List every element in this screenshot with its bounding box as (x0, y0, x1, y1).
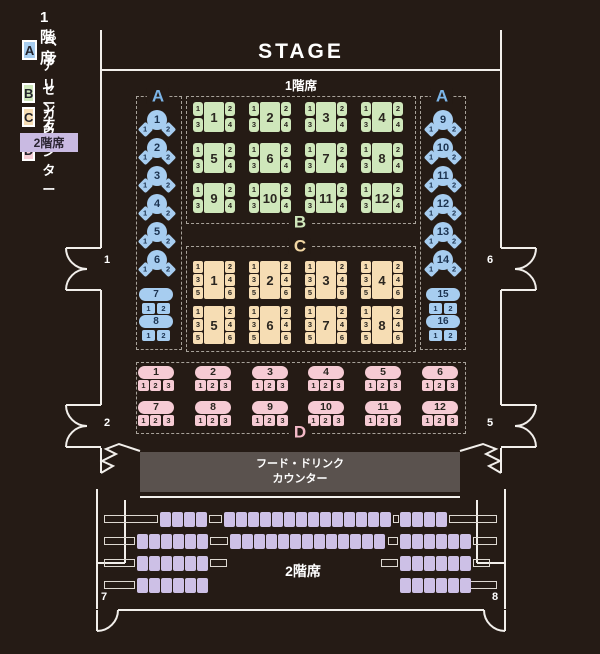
floor2-counter-bar (104, 581, 135, 589)
seat: 4 (281, 319, 291, 331)
legend-floor2-badge: 2階席 (20, 133, 78, 152)
seat: 4 (281, 118, 291, 132)
floor2-seat (272, 512, 283, 527)
table-b-11: 11 (316, 183, 336, 213)
table-b-8: 8 (372, 143, 392, 173)
floor2-seat (173, 534, 184, 549)
table-c-5: 5 (204, 306, 224, 344)
seat: 1 (429, 303, 442, 314)
seat: 1 (429, 330, 442, 341)
floor2-seat (424, 578, 435, 593)
floor2-seat (197, 556, 208, 571)
seat: 5 (305, 287, 315, 299)
floor2-seat (185, 556, 196, 571)
seat: 2 (281, 143, 291, 157)
floor2-seat (308, 512, 319, 527)
floor2-counter-bar (210, 559, 227, 567)
floor2-seat (173, 556, 184, 571)
floor2-seat (344, 512, 355, 527)
table-c-1: 1 (204, 261, 224, 299)
floor2-counter-bar (104, 537, 135, 545)
floor2-seat (338, 534, 349, 549)
seat: 1 (193, 143, 203, 157)
floor2-seat (284, 512, 295, 527)
seat: 2 (207, 415, 218, 426)
seat: 2 (337, 183, 347, 197)
floor2-seat (149, 556, 160, 571)
seat: 2 (393, 306, 403, 318)
seat: 3 (163, 380, 174, 391)
seat: 5 (305, 332, 315, 344)
floor2-seat (424, 534, 435, 549)
seat: 5 (249, 287, 259, 299)
seat: 4 (281, 159, 291, 173)
seat: 3 (305, 319, 315, 331)
floor2-seat (314, 534, 325, 549)
seat: 3 (333, 380, 344, 391)
floor2-seat (436, 512, 447, 527)
floor2-seat (266, 534, 277, 549)
floor2-seat (362, 534, 373, 549)
counter-d-7: 7 (138, 401, 174, 414)
seat: 6 (337, 332, 347, 344)
seat: 1 (305, 102, 315, 116)
seat: 3 (249, 199, 259, 213)
table-b-9: 9 (204, 183, 224, 213)
floor2-seat (460, 534, 471, 549)
floor1-label: 1階席 (251, 75, 351, 94)
door-5-symbol (501, 405, 536, 447)
counter-d-6: 6 (422, 366, 458, 379)
floor2-seat (197, 534, 208, 549)
seat: 2 (225, 306, 235, 318)
section-a-right-label: A (431, 88, 453, 105)
floor2-seat (436, 578, 447, 593)
seat: 4 (225, 199, 235, 213)
seat: 1 (422, 415, 433, 426)
floor2-seat (173, 578, 184, 593)
floor2-counter-bar (104, 559, 135, 567)
floor2-counter-bar (209, 515, 222, 523)
seat: 6 (225, 287, 235, 299)
floor2-seat (448, 534, 459, 549)
door-number-7: 7 (101, 591, 107, 603)
seat: 2 (320, 415, 331, 426)
seat: 2 (337, 306, 347, 318)
counter-d-12: 12 (422, 401, 458, 414)
floor2-seat (368, 512, 379, 527)
floor2-seat (184, 512, 195, 527)
door-number-6: 6 (487, 254, 493, 266)
seat: 3 (361, 274, 371, 286)
floor2-seat (224, 512, 235, 527)
floor2-seat (460, 578, 471, 593)
seat: 1 (249, 183, 259, 197)
seat: 3 (333, 415, 344, 426)
seat: 1 (305, 306, 315, 318)
food-drink-counter-line1: フード・ドリンク (256, 457, 344, 472)
table-b-1: 1 (204, 102, 224, 132)
seat: 4 (393, 274, 403, 286)
seat: 6 (225, 332, 235, 344)
seat: 2 (225, 183, 235, 197)
seat: 1 (365, 415, 376, 426)
seat: 1 (365, 380, 376, 391)
seat: 3 (305, 274, 315, 286)
seat: 4 (393, 118, 403, 132)
floor2-seat (448, 556, 459, 571)
seat: 3 (361, 118, 371, 132)
counter-d-3: 3 (252, 366, 288, 379)
floor2-seat (436, 556, 447, 571)
seat: 3 (361, 199, 371, 213)
seat: 1 (361, 183, 371, 197)
table-b-7: 7 (316, 143, 336, 173)
floor2-seat (320, 512, 331, 527)
seat: 1 (193, 261, 203, 273)
floor2-seat (448, 578, 459, 593)
seat: 3 (447, 380, 458, 391)
table-c-3: 3 (316, 261, 336, 299)
seat: 3 (193, 159, 203, 173)
floor2-seat (137, 534, 148, 549)
seat: 5 (361, 332, 371, 344)
seat: 6 (281, 287, 291, 299)
floor2-seat (172, 512, 183, 527)
floor2-counter-bar (388, 537, 398, 545)
counter-d-1: 1 (138, 366, 174, 379)
floor2-seat (400, 578, 411, 593)
section-c-label: C (289, 238, 311, 255)
seat: 2 (434, 415, 445, 426)
seat: 3 (390, 415, 401, 426)
floor2-seat (161, 556, 172, 571)
seat: 1 (252, 415, 263, 426)
seat: 2 (337, 102, 347, 116)
seat: 6 (393, 332, 403, 344)
table-c-2: 2 (260, 261, 280, 299)
seat: 6 (281, 332, 291, 344)
door-7-symbol (97, 610, 118, 631)
seat: 4 (393, 199, 403, 213)
seat: 2 (444, 330, 457, 341)
floor2-seat (161, 578, 172, 593)
seat: 2 (281, 306, 291, 318)
floor2-counter-bar (104, 515, 158, 523)
seat: 1 (422, 380, 433, 391)
floor2-seat (302, 534, 313, 549)
seat: 3 (193, 274, 203, 286)
seat: 2 (393, 183, 403, 197)
floor2-seat (160, 512, 171, 527)
seat: 2 (281, 261, 291, 273)
floor2-seat (460, 556, 471, 571)
floor2-seat (400, 556, 411, 571)
seat: 2 (157, 303, 170, 314)
seat: 3 (220, 380, 231, 391)
food-drink-counter: フード・ドリンク カウンター (140, 452, 460, 492)
floor2-seat (254, 534, 265, 549)
seat: 3 (305, 199, 315, 213)
seat: 1 (195, 415, 206, 426)
table-a-8: 8 (139, 315, 173, 328)
floor2-counter-bar (470, 581, 497, 589)
seat: 4 (337, 118, 347, 132)
floor2-counter-bar (473, 559, 490, 567)
floor2-counter-bar (381, 559, 398, 567)
seat: 3 (277, 380, 288, 391)
floor2-seat (296, 512, 307, 527)
floor2-seat (197, 578, 208, 593)
seat: 3 (220, 415, 231, 426)
floor2-seat (236, 512, 247, 527)
break-line-right (460, 444, 501, 473)
seat: 3 (361, 159, 371, 173)
break-line-left (101, 444, 140, 473)
floor2-seat (260, 512, 271, 527)
seat: 4 (225, 118, 235, 132)
seat: 1 (361, 261, 371, 273)
table-b-12: 12 (372, 183, 392, 213)
floor2-seat (412, 556, 423, 571)
seat: 3 (305, 159, 315, 173)
seat: 2 (393, 143, 403, 157)
seat: 3 (305, 118, 315, 132)
floor2-seat (400, 534, 411, 549)
seat: 1 (305, 143, 315, 157)
seat: 2 (444, 303, 457, 314)
door-number-8: 8 (492, 591, 498, 603)
door-1-symbol (66, 248, 101, 290)
seat: 4 (337, 319, 347, 331)
seat: 3 (277, 415, 288, 426)
food-drink-counter-line2: カウンター (273, 472, 328, 487)
seat: 1 (305, 183, 315, 197)
table-c-6: 6 (260, 306, 280, 344)
seat: 1 (142, 330, 155, 341)
seat: 4 (337, 159, 347, 173)
seat: 2 (337, 261, 347, 273)
seat: 2 (320, 380, 331, 391)
table-b-6: 6 (260, 143, 280, 173)
floor2-seat (374, 534, 385, 549)
seat: 1 (195, 380, 206, 391)
counter-d-2: 2 (195, 366, 231, 379)
seat: 1 (138, 380, 149, 391)
floor2-seat (356, 512, 367, 527)
seat: 5 (193, 332, 203, 344)
seat: 1 (249, 102, 259, 116)
seat: 4 (225, 319, 235, 331)
seat: 1 (142, 303, 155, 314)
section-a-left-label: A (147, 88, 169, 105)
seat: 2 (157, 330, 170, 341)
seat: 3 (249, 274, 259, 286)
floor2-seat (436, 534, 447, 549)
floor2-seat (412, 534, 423, 549)
seat: 3 (193, 319, 203, 331)
table-a-7: 7 (139, 288, 173, 301)
floor2-seat (424, 556, 435, 571)
door-number-5: 5 (487, 417, 493, 429)
table-b-3: 3 (316, 102, 336, 132)
floor2-counter-bar (473, 537, 497, 545)
floor2-seat (326, 534, 337, 549)
seat: 3 (249, 319, 259, 331)
floor2-seat (149, 534, 160, 549)
floor2-seat (185, 534, 196, 549)
table-b-10: 10 (260, 183, 280, 213)
seat: 3 (361, 319, 371, 331)
seat: 4 (281, 199, 291, 213)
seat: 1 (361, 143, 371, 157)
seat: 3 (249, 159, 259, 173)
section-d-label: D (289, 424, 311, 441)
table-b-5: 5 (204, 143, 224, 173)
seat: 5 (249, 332, 259, 344)
table-c-4: 4 (372, 261, 392, 299)
seat: 2 (207, 380, 218, 391)
seat: 1 (193, 183, 203, 197)
seat: 2 (264, 415, 275, 426)
floor2-seat (290, 534, 301, 549)
floor2-label: 2階席 (250, 561, 356, 581)
counter-d-4: 4 (308, 366, 344, 379)
floor2-seat (230, 534, 241, 549)
floor2-seat (332, 512, 343, 527)
seat: 2 (377, 380, 388, 391)
seat: 4 (393, 319, 403, 331)
seat: 2 (264, 380, 275, 391)
counter-d-8: 8 (195, 401, 231, 414)
floor2-seat (161, 534, 172, 549)
seat: 5 (361, 287, 371, 299)
floor2-seat (137, 578, 148, 593)
floor2-counter-bar (210, 537, 228, 545)
seat: 4 (281, 274, 291, 286)
seat: 2 (225, 143, 235, 157)
counter-d-9: 9 (252, 401, 288, 414)
stage-label: STAGE (201, 40, 401, 64)
floor2-seat (412, 578, 423, 593)
door-8-symbol (484, 610, 505, 631)
seat: 1 (361, 306, 371, 318)
floor2-seat (400, 512, 411, 527)
seat: 2 (225, 102, 235, 116)
venue-seating-chart: 1階席 A ペア B アリーナ C センター D カウンター 2階席 STAGE… (0, 0, 600, 654)
seat: 3 (447, 415, 458, 426)
seat: 4 (225, 274, 235, 286)
seat: 1 (138, 415, 149, 426)
seat: 5 (193, 287, 203, 299)
counter-d-10: 10 (308, 401, 344, 414)
floor2-seat (185, 578, 196, 593)
seat: 1 (249, 261, 259, 273)
seat: 2 (225, 261, 235, 273)
floor2-seat (278, 534, 289, 549)
floor2-seat (380, 512, 391, 527)
floor2-seat (350, 534, 361, 549)
floor2-seat (412, 512, 423, 527)
floor2-seat (137, 556, 148, 571)
seat: 4 (393, 159, 403, 173)
seat: 1 (305, 261, 315, 273)
seat: 3 (193, 199, 203, 213)
floor2-counter-bar (393, 515, 399, 523)
floor2-counter-bar (449, 515, 497, 523)
seat: 1 (361, 102, 371, 116)
floor2-seat (242, 534, 253, 549)
seat: 3 (249, 118, 259, 132)
counter-d-5: 5 (365, 366, 401, 379)
floor2-seat (424, 512, 435, 527)
seat: 2 (434, 380, 445, 391)
table-a-16: 16 (426, 315, 460, 328)
section-b-label: B (289, 214, 311, 231)
door-number-1: 1 (104, 254, 110, 266)
table-b-2: 2 (260, 102, 280, 132)
seat: 1 (252, 380, 263, 391)
floor2-seat (196, 512, 207, 527)
floor2-seat (248, 512, 259, 527)
seat: 4 (225, 159, 235, 173)
seat: 2 (150, 415, 161, 426)
seat: 1 (249, 306, 259, 318)
seat: 1 (193, 102, 203, 116)
seat: 1 (249, 143, 259, 157)
seat: 2 (337, 143, 347, 157)
seat: 3 (390, 380, 401, 391)
seat: 6 (337, 287, 347, 299)
seat: 3 (193, 118, 203, 132)
seat: 4 (337, 199, 347, 213)
seat: 2 (281, 183, 291, 197)
door-6-symbol (501, 248, 536, 290)
counter-d-11: 11 (365, 401, 401, 414)
table-b-4: 4 (372, 102, 392, 132)
seat: 2 (377, 415, 388, 426)
seat: 3 (163, 415, 174, 426)
door-number-2: 2 (104, 417, 110, 429)
table-a-15: 15 (426, 288, 460, 301)
seat: 2 (393, 102, 403, 116)
seat: 1 (193, 306, 203, 318)
seat: 1 (308, 380, 319, 391)
table-c-7: 7 (316, 306, 336, 344)
seat: 2 (150, 380, 161, 391)
door-2-symbol (66, 405, 101, 447)
seat: 2 (281, 102, 291, 116)
floor2-seat (149, 578, 160, 593)
seat: 4 (337, 274, 347, 286)
table-c-8: 8 (372, 306, 392, 344)
seat: 2 (393, 261, 403, 273)
seat: 6 (393, 287, 403, 299)
